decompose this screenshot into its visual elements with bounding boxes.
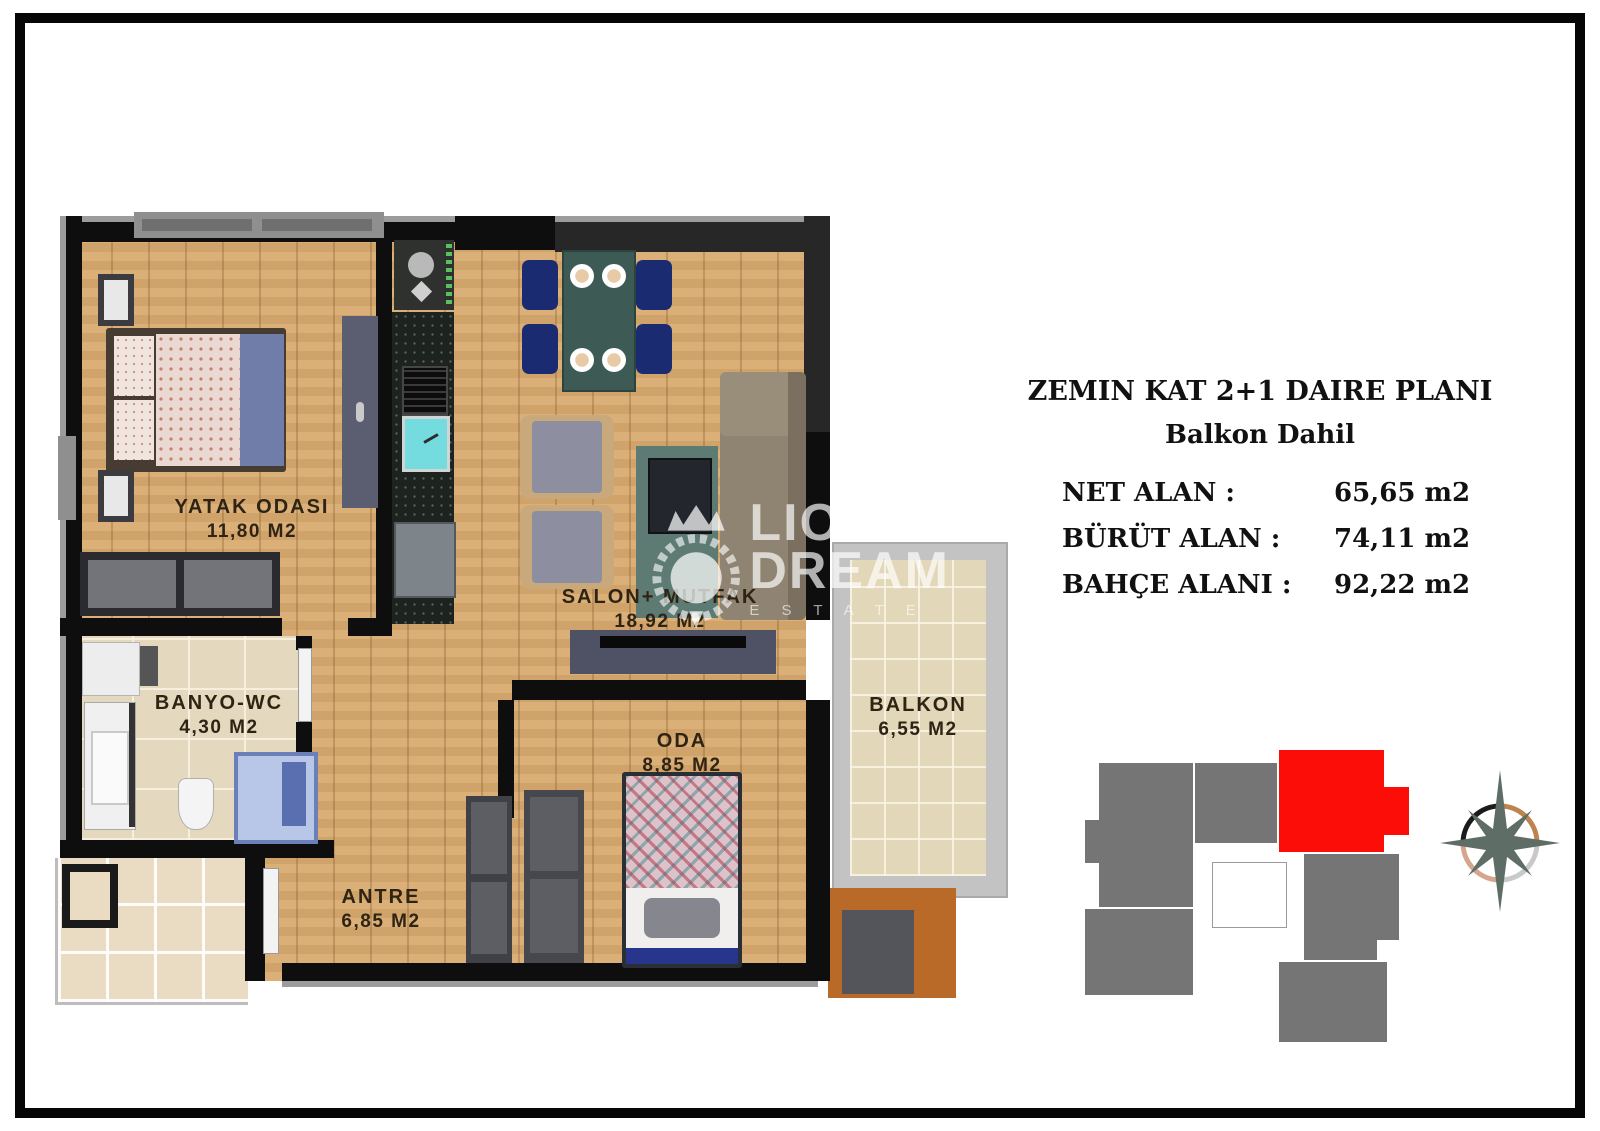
nightstand: [98, 274, 134, 326]
bathroom-cabinet: [140, 646, 158, 686]
bedroom-side-window: [58, 436, 76, 520]
armchair: [520, 505, 614, 589]
room-area: 6,85 M2: [281, 910, 481, 935]
spec-label: BAHÇE ALANI :: [1062, 570, 1334, 600]
compass-rose-icon: [1434, 764, 1566, 916]
wardrobe-panel: [530, 797, 578, 871]
spec-row: BAHÇE ALANI : 92,22 m2: [1062, 570, 1502, 616]
fridge-icon: [411, 281, 432, 302]
plate: [570, 264, 594, 288]
dining-chair: [636, 260, 672, 310]
plate: [570, 348, 594, 372]
nightstand-top: [104, 280, 128, 320]
spec-value: 74,11 m2: [1334, 524, 1502, 554]
key-plan-core: [1212, 862, 1287, 928]
dining-table: [562, 250, 636, 392]
bed-pillow: [114, 336, 154, 396]
kitchen-sink: [402, 416, 450, 472]
room-label-yatak-odasi: YATAK ODASI 11,80 M2: [152, 494, 352, 545]
shower-panel: [282, 762, 306, 826]
sofa-backrest: [788, 372, 806, 620]
bed-floral-blanket: [156, 334, 240, 466]
corner-window-glass: [555, 216, 830, 252]
wall: [806, 700, 830, 981]
plan-subtitle: Balkon Dahil: [1000, 420, 1520, 450]
armchair-cushion: [532, 511, 602, 583]
room-label-balkon: BALKON 6,55 M2: [848, 692, 988, 743]
coffee-table: [648, 458, 712, 534]
spec-value: 92,22 m2: [1334, 570, 1502, 600]
tv-unit: [570, 630, 776, 674]
vanity-sink: [91, 731, 129, 805]
room-name: ODA: [582, 728, 782, 754]
spec-label: NET ALAN :: [1062, 478, 1334, 508]
key-plan-block: [1304, 940, 1377, 960]
wall: [512, 680, 806, 700]
wall: [806, 432, 830, 620]
room-area: 4,30 M2: [119, 716, 319, 741]
key-plan-block: [1099, 763, 1193, 907]
key-plan-block: [1304, 854, 1399, 940]
wall: [245, 858, 265, 981]
key-plan-block: [1085, 820, 1099, 863]
room-name: YATAK ODASI: [152, 494, 352, 520]
balcony-cabinet-front: [842, 910, 914, 994]
stove: [402, 366, 448, 416]
dresser-handle: [356, 402, 364, 422]
faucet: [423, 433, 438, 444]
wall: [60, 216, 82, 858]
shower: [234, 752, 318, 844]
area-specs: NET ALAN : 65,65 m2 BÜRÜT ALAN : 74,11 m…: [1062, 478, 1502, 616]
key-plan-unit-highlight: [1279, 750, 1384, 852]
nightstand-top: [104, 476, 128, 516]
bed-diamond-blanket: [626, 776, 738, 888]
patio-planter: [62, 864, 118, 928]
bed-blue-throw: [240, 334, 284, 466]
kitchen-cabinet: [394, 522, 456, 598]
spec-label: BÜRÜT ALAN :: [1062, 524, 1334, 554]
wardrobe-panel: [471, 802, 507, 874]
room-name: BANYO-WC: [119, 690, 319, 716]
armchair: [520, 415, 614, 499]
double-bed: [106, 328, 286, 472]
dining-chair: [522, 324, 558, 374]
room-name: ANTRE: [281, 884, 481, 910]
room-area: 11,80 M2: [152, 520, 352, 545]
window-pane: [142, 219, 252, 231]
room-label-salon-mutfak: SALON+ MUTFAK 18,92 M2: [560, 584, 760, 635]
spec-value: 65,65 m2: [1334, 478, 1502, 508]
window-pane: [262, 219, 372, 231]
bedroom-dresser: [342, 316, 378, 508]
wardrobe-panel: [530, 879, 578, 953]
wardrobe-panel: [88, 560, 176, 608]
nightstand: [98, 470, 134, 522]
tv: [600, 636, 746, 648]
washing-machine: [82, 642, 140, 696]
bedroom-wardrobe: [80, 552, 280, 616]
room-label-banyo-wc: BANYO-WC 4,30 M2: [119, 690, 319, 741]
bedroom-window: [134, 212, 384, 238]
bed-pillow: [114, 400, 154, 460]
wall: [455, 216, 559, 250]
entrance-door: [263, 868, 279, 954]
patio-planter-inner: [70, 872, 110, 920]
room-name: SALON+ MUTFAK: [560, 584, 760, 610]
room-wardrobe: [524, 790, 584, 963]
key-plan-block: [1085, 909, 1193, 995]
plate: [602, 264, 626, 288]
armchair-cushion: [532, 421, 602, 493]
wardrobe-panel: [184, 560, 272, 608]
floor-plan: YATAK ODASI 11,80 M2 SALON+ MUTFAK 18,92…: [50, 200, 1055, 1005]
bed-pillow: [644, 898, 720, 938]
plan-title: ZEMIN KAT 2+1 DAIRE PLANI: [1000, 376, 1520, 407]
key-plan: [1078, 742, 1410, 1044]
wall: [60, 618, 282, 636]
toilet: [178, 778, 214, 830]
wall: [348, 618, 392, 636]
balcony-cabinet: [828, 888, 956, 998]
wall: [376, 234, 392, 624]
key-plan-block: [1195, 763, 1277, 843]
corner-window-glass: [804, 216, 830, 432]
room-area: 18,92 M2: [560, 610, 760, 635]
key-plan-unit-highlight: [1384, 787, 1409, 835]
fridge: [394, 240, 454, 310]
fridge-coil: [446, 244, 452, 304]
spec-row: BÜRÜT ALAN : 74,11 m2: [1062, 524, 1502, 570]
room-label-oda: ODA 8,85 M2: [582, 728, 782, 779]
bed-foot-rail: [626, 948, 738, 964]
dining-chair: [522, 260, 558, 310]
fridge-icon: [408, 252, 434, 278]
plate: [602, 348, 626, 372]
sofa: [720, 372, 806, 620]
hall-wardrobe: [466, 796, 512, 963]
dining-chair: [636, 324, 672, 374]
room-area: 6,55 M2: [848, 718, 988, 743]
single-bed: [622, 772, 742, 968]
room-name: BALKON: [848, 692, 988, 718]
spec-row: NET ALAN : 65,65 m2: [1062, 478, 1502, 524]
room-area: 8,85 M2: [582, 754, 782, 779]
room-label-antre: ANTRE 6,85 M2: [281, 884, 481, 935]
key-plan-block: [1279, 962, 1387, 1042]
